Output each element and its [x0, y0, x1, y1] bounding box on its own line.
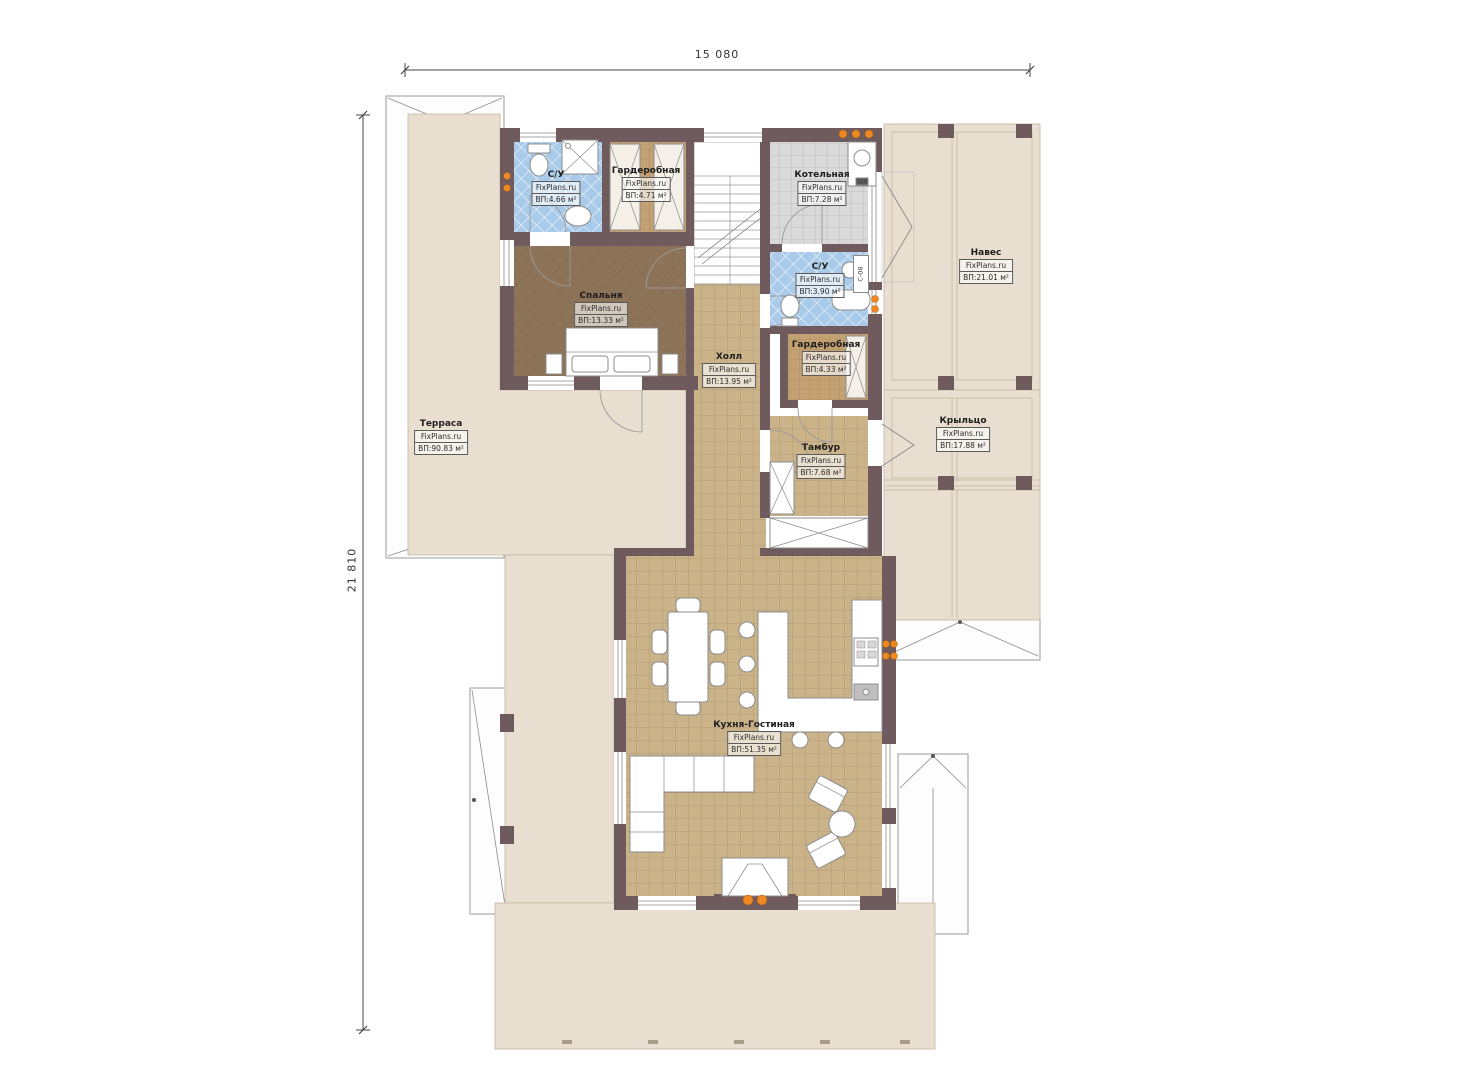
dimension-height-label: 21 810 [346, 548, 359, 593]
door-tag: С-08 [853, 255, 869, 293]
floor-plan-page: 15 080 21 810 С-08 С/У FixPlans.ru ВП:4.… [0, 0, 1474, 1080]
floor-plan-drawing [0, 0, 1474, 1080]
dimension-width-label: 15 080 [695, 48, 740, 61]
